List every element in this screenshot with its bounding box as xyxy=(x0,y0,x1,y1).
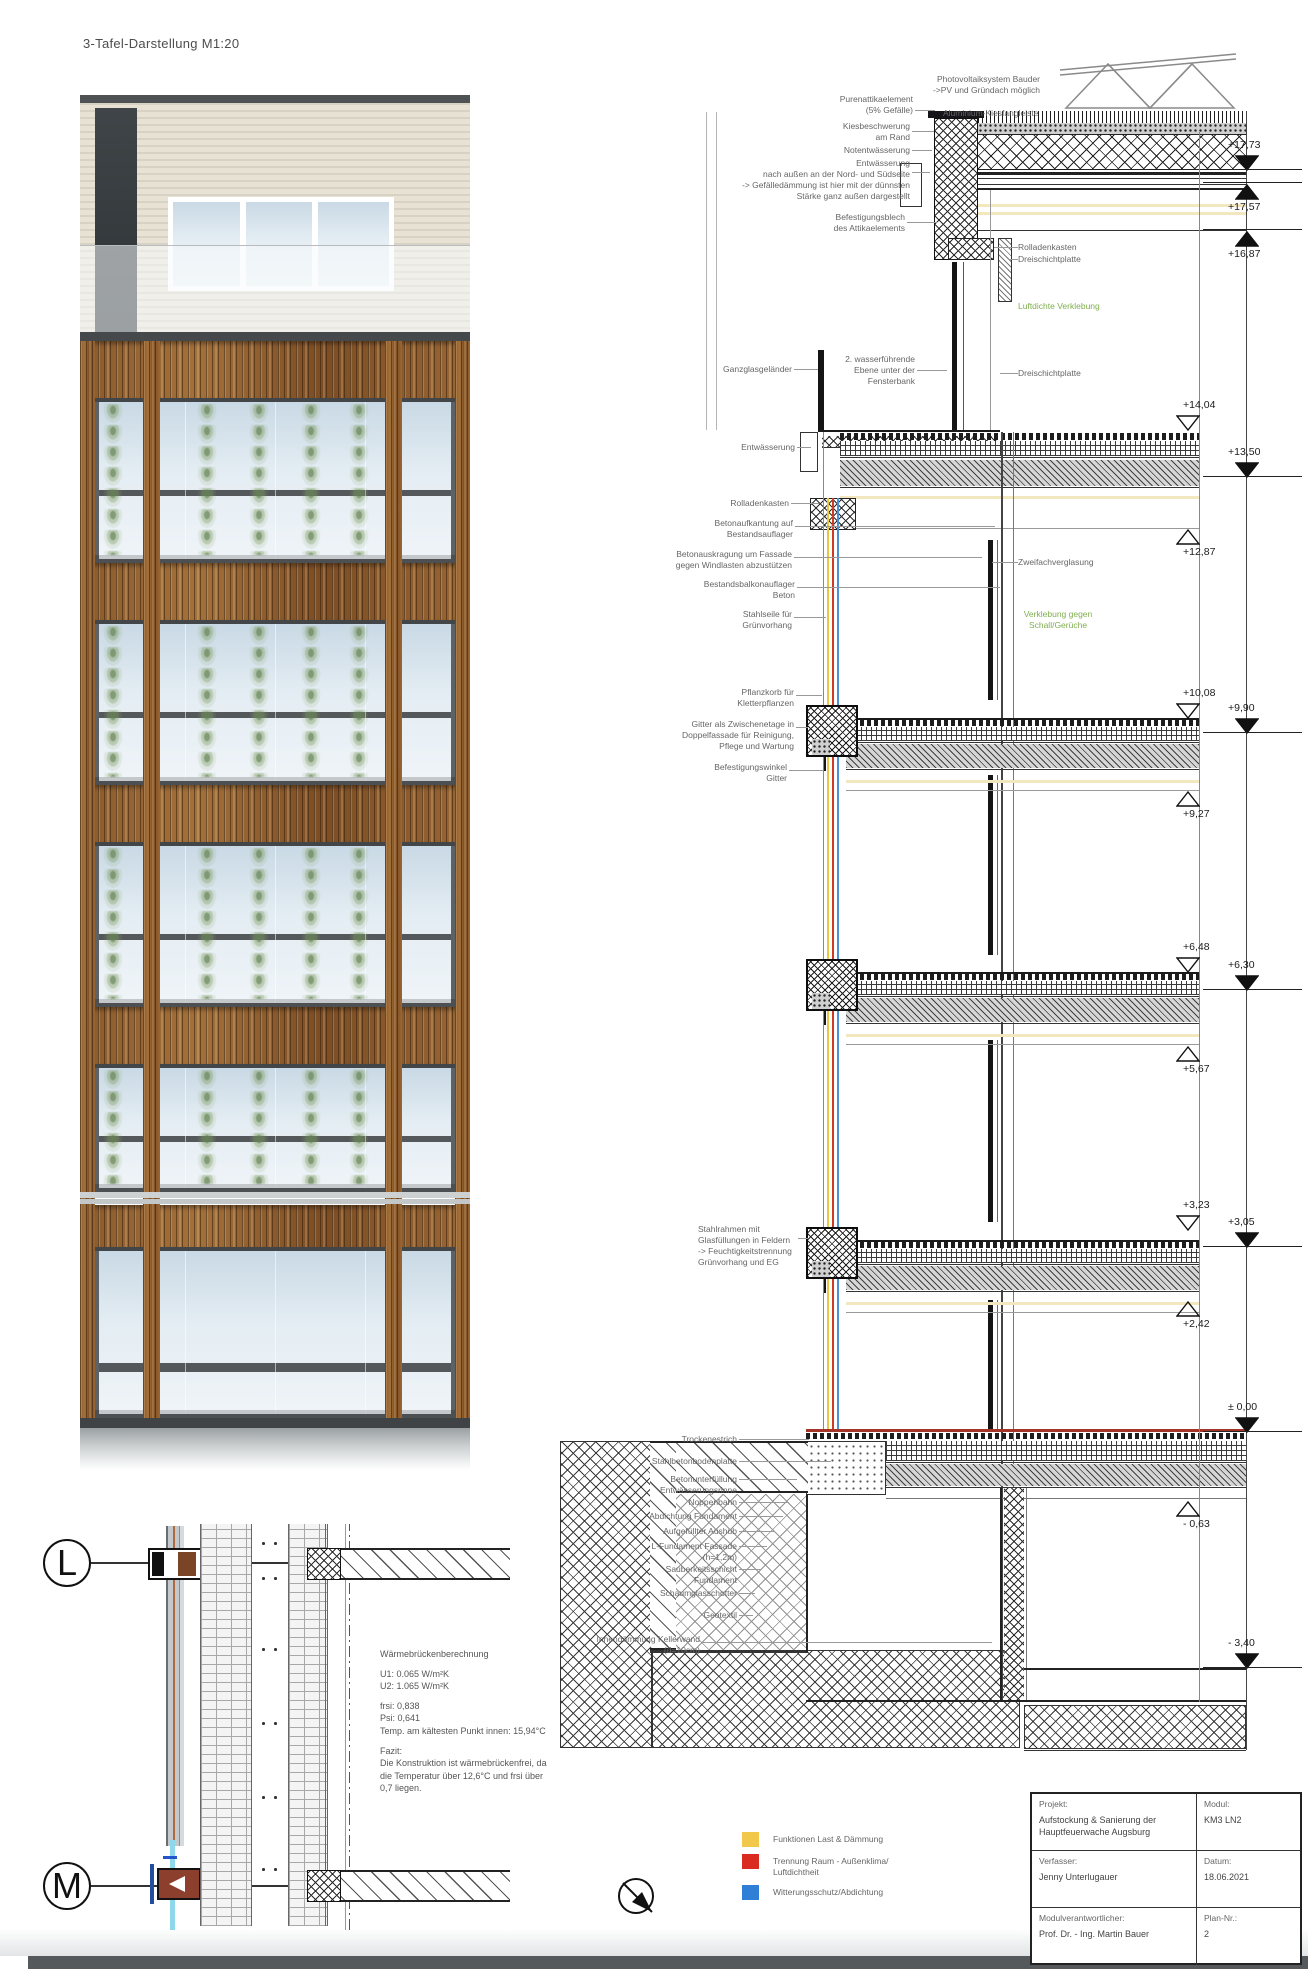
detail-shape xyxy=(325,1524,326,1926)
annotation-label: Pflanzkorb für Kletterpflanzen xyxy=(710,687,794,709)
annotation-label: Rolladenkasten xyxy=(723,498,789,509)
detail-shape xyxy=(262,1868,265,1871)
basement-wall-right xyxy=(1000,1488,1002,1702)
responsible-value: Prof. Dr. - Ing. Martin Bauer xyxy=(1039,1929,1189,1941)
basement-wall-left xyxy=(806,1494,808,1652)
section-shape xyxy=(846,1249,1200,1263)
bracket xyxy=(824,1011,826,1025)
soil-band xyxy=(652,1650,1020,1748)
section-shape xyxy=(846,780,1200,783)
level-line xyxy=(1203,476,1302,477)
vine-strip xyxy=(346,404,372,555)
annotation-label: Abdichtung Fundament xyxy=(610,1511,737,1522)
wood-pier xyxy=(143,341,160,1418)
level-triangle-icon xyxy=(1176,1301,1200,1317)
drawing-shape xyxy=(275,846,276,1003)
annotation-leader xyxy=(992,562,1018,563)
level-value: +14,04 xyxy=(1183,399,1255,411)
roof-edge xyxy=(80,95,470,103)
annotation-leader xyxy=(912,131,934,132)
screed-red-line xyxy=(806,1429,1246,1432)
responsible-label: Modulverantwortlicher: xyxy=(1039,1913,1189,1923)
gravel-fill xyxy=(808,1443,884,1493)
vine-strip xyxy=(104,626,122,777)
section-shape xyxy=(846,718,1200,720)
ceiling-line xyxy=(846,790,1200,791)
annotation-label: Geotextil xyxy=(610,1610,737,1621)
detail-shape xyxy=(274,1796,277,1799)
level-line xyxy=(1203,989,1302,990)
level-value: +9,27 xyxy=(1183,808,1255,820)
detail-shape xyxy=(274,1868,277,1871)
level-triangle-icon xyxy=(1235,184,1259,200)
floor-slab xyxy=(846,1266,1200,1290)
level-value: ± 0,00 xyxy=(1228,1401,1300,1413)
annotation-label: Noppenbahn xyxy=(610,1497,737,1508)
wood-pier xyxy=(455,341,470,1418)
level-triangle-icon xyxy=(1176,1501,1200,1517)
floor-slab xyxy=(846,744,1200,768)
basement-slab-top xyxy=(1024,1668,1246,1670)
section-shape xyxy=(1026,1488,1027,1702)
level-line xyxy=(1203,1667,1302,1668)
annotation-label: Zweifachverglasung xyxy=(1018,557,1118,568)
detail-shape xyxy=(262,1796,265,1799)
level-triangle-icon xyxy=(1235,231,1259,247)
masonry-wall-2 xyxy=(288,1524,328,1926)
page-title: 3-Tafel-Darstellung M1:20 xyxy=(83,36,239,51)
legend-item: Witterungsschutz/Abdichtung xyxy=(742,1885,888,1900)
level-line xyxy=(1203,169,1302,170)
double-glazing-window xyxy=(988,540,993,700)
calc-text-line: frsi: 0,838 xyxy=(380,1700,555,1713)
detail-shape xyxy=(274,1722,277,1725)
glass-balustrade xyxy=(80,245,470,333)
section-shape xyxy=(846,727,1200,741)
level-triangle-icon xyxy=(1176,791,1200,807)
detail-insulation-M xyxy=(307,1870,341,1902)
annotation-leader xyxy=(791,503,819,504)
section-shape xyxy=(846,1242,1200,1248)
detail-shape xyxy=(152,1552,164,1576)
calc-text-line xyxy=(380,1693,555,1700)
ground-sill xyxy=(80,1418,470,1428)
annotation-label: Stahlrahmen mit Glasfüllungen in Feldern… xyxy=(698,1224,796,1268)
detail-shape xyxy=(262,1542,265,1545)
section-shape xyxy=(846,742,1200,743)
detail-insulation-L xyxy=(307,1548,341,1580)
section-shape xyxy=(846,1240,1200,1242)
calc-text-line xyxy=(380,1661,555,1668)
calc-text-line: Die Konstruktion ist wärmebrückenfrei, d… xyxy=(380,1757,555,1770)
vine-strip xyxy=(298,626,324,777)
masonry-wall-1 xyxy=(200,1524,252,1926)
section-shape xyxy=(846,720,1200,726)
annotation-label: Photovoltaiksystem Bauder ->PV und Gründ… xyxy=(905,74,1040,96)
walkway-top xyxy=(818,430,1000,432)
section-shape xyxy=(978,204,1246,207)
annotation-label: L-Fundament Fassade (h=1,2m) xyxy=(610,1541,737,1563)
roof-substrate xyxy=(978,123,1246,134)
section-shape xyxy=(846,974,1200,980)
vine-strip xyxy=(104,848,122,999)
rolladenkasten xyxy=(948,238,994,260)
plan-number-value: 2 xyxy=(1204,1929,1293,1941)
wood-spandrel xyxy=(80,1007,470,1064)
section-shape xyxy=(846,1034,1200,1037)
level-line xyxy=(1203,732,1302,733)
annotation-leader xyxy=(796,695,822,696)
annotation-label: Innendämmung Kellerwand (d=10cm) xyxy=(575,1634,700,1656)
vine-strip xyxy=(104,1070,122,1184)
legend-item: Funktionen Last & Dämmung xyxy=(742,1832,888,1847)
detail-marker-L-label: L xyxy=(57,1542,77,1584)
section-shape xyxy=(846,981,1200,995)
section-shape xyxy=(886,1441,1246,1461)
planter-insulation-box xyxy=(806,705,858,757)
annotation-label: Purenattikaelement (5% Gefälle) xyxy=(805,94,913,116)
title-block-row: Verfasser: Jenny Unterlugauer Datum: 18.… xyxy=(1032,1851,1300,1908)
legend-item: Trennung Raum - Außenklima/ Luftdichthei… xyxy=(742,1854,888,1878)
detail-shape xyxy=(262,1577,265,1580)
annotation-label: Verklebung gegen Schall/Gerüche xyxy=(1012,609,1104,631)
annotation-label: Ganzglasgeländer xyxy=(712,364,792,375)
section-shape xyxy=(990,190,991,432)
detail-shape xyxy=(262,1722,265,1725)
annotation-leader xyxy=(796,727,808,728)
annotation-leader xyxy=(1008,259,1018,260)
walkway-insulation xyxy=(822,436,998,448)
existing-wall xyxy=(1001,432,1003,1702)
annotation-label: Rolladenkasten xyxy=(1018,242,1113,253)
basement-floor-line xyxy=(806,1700,1246,1702)
detail-shape xyxy=(274,1542,277,1545)
vine-strip xyxy=(194,404,220,555)
annotation-label: Luftdichte Verklebung xyxy=(1018,301,1128,312)
wood-pier xyxy=(80,341,95,1418)
double-glazing-window xyxy=(988,775,993,955)
pflanzkorb xyxy=(812,1261,830,1277)
annotation-leader xyxy=(739,1516,783,1517)
plinth xyxy=(80,1428,470,1470)
annotation-leader xyxy=(794,617,826,618)
ground-slab xyxy=(886,1464,1246,1486)
vine-strip xyxy=(194,848,220,999)
drainage-channel xyxy=(806,1441,886,1495)
soil-under-slab xyxy=(1024,1705,1246,1749)
detail-shape xyxy=(163,1856,177,1859)
double-glazing-window xyxy=(988,1300,993,1430)
section-shape xyxy=(886,1462,1246,1463)
thermal-bridge-calculation: WärmebrückenberechnungU1: 0.065 W/m²KU2:… xyxy=(380,1648,555,1795)
annotation-label: Befestigungswinkel Gitter xyxy=(703,762,787,784)
node-M-rail xyxy=(150,1864,154,1904)
floor-slab xyxy=(846,998,1200,1022)
detail-shape xyxy=(274,1577,277,1580)
annotation-leader xyxy=(912,150,932,151)
ceiling-line xyxy=(846,1044,1200,1045)
pflanzkorb xyxy=(812,739,830,755)
vine-strip xyxy=(194,1070,220,1184)
gitter-rail xyxy=(80,1192,470,1198)
calc-text-line: die Temperatur über 12,6°C und frsi über xyxy=(380,1770,555,1783)
level-line xyxy=(1203,182,1302,183)
section-shape xyxy=(846,1023,1200,1024)
level-triangle-icon xyxy=(1176,957,1200,973)
layer-line-yellow xyxy=(827,498,829,1432)
vine-strip xyxy=(246,848,272,999)
level-triangle-icon xyxy=(1176,1215,1200,1231)
wood-spandrel xyxy=(80,1205,470,1247)
wood-spandrel xyxy=(80,785,470,842)
legend-swatch xyxy=(742,1854,759,1869)
detail-marker-L: L xyxy=(43,1539,91,1587)
level-value: +17,73 xyxy=(1228,139,1300,151)
level-value: +3,05 xyxy=(1228,1216,1300,1228)
drawing-shape xyxy=(275,1068,276,1188)
section-shape xyxy=(846,1302,1200,1305)
date-value: 18.06.2021 xyxy=(1204,1872,1293,1884)
author-value: Jenny Unterlugauer xyxy=(1039,1872,1189,1884)
planter-insulation-box xyxy=(806,959,858,1011)
level-value: +3,23 xyxy=(1183,1199,1255,1211)
level-value: +9,90 xyxy=(1228,702,1300,714)
legend-swatch xyxy=(742,1885,759,1900)
annotation-leader xyxy=(739,1615,753,1616)
section-shape xyxy=(846,972,1200,974)
double-glazing-window xyxy=(988,1040,993,1222)
annotation-label: Betonunterfüllung Entwässerungsrinne xyxy=(610,1474,737,1496)
attika-element xyxy=(934,118,978,260)
gitter-rail xyxy=(80,1199,470,1204)
annotation-label: Stahlseile für Grünvorhang xyxy=(713,609,792,631)
annotation-leader xyxy=(739,1439,809,1440)
detail-shape xyxy=(262,1648,265,1651)
section-shape xyxy=(978,184,1246,185)
annotation-label: Trockenestrich xyxy=(610,1434,737,1445)
drawing-shape xyxy=(185,624,186,781)
drawing-shape xyxy=(185,1251,186,1414)
section-shape xyxy=(997,775,998,955)
annotation-label: Befestigungsblech des Attikaelements xyxy=(795,212,905,234)
annotation-label: Aufgefüllter Aushub xyxy=(610,1526,737,1537)
level-triangle-icon xyxy=(1176,415,1200,431)
legend-label: Trennung Raum - Außenklima/ Luftdichthei… xyxy=(773,1854,888,1878)
annotation-leader xyxy=(915,110,935,111)
section-shape xyxy=(978,230,1246,231)
drawing-shape xyxy=(275,402,276,559)
bracket xyxy=(824,757,826,771)
level-value: +2,42 xyxy=(1183,1318,1255,1330)
vine-strip xyxy=(298,848,324,999)
module-value: KM3 LN2 xyxy=(1204,1815,1293,1827)
ceiling-line xyxy=(840,528,1200,529)
level-triangle-icon xyxy=(1176,529,1200,545)
section-shape xyxy=(997,540,998,700)
section-shape xyxy=(1024,1750,1246,1751)
section-shape xyxy=(978,188,1246,190)
section-shape xyxy=(846,1264,1200,1265)
section-shape xyxy=(840,457,1200,458)
drawing-shape xyxy=(365,1251,366,1414)
section-shape xyxy=(978,212,1246,215)
calc-text-line: Psi: 0,641 xyxy=(380,1712,555,1725)
drawing-shape xyxy=(275,1251,276,1414)
section-shape xyxy=(840,496,1200,499)
annotation-label: Sauberkeitsschicht Fundament xyxy=(610,1564,737,1586)
planter-insulation-box xyxy=(806,1227,858,1279)
pv-system-symbol xyxy=(1058,50,1244,114)
title-block-row: Modulverantwortlicher: Prof. Dr. - Ing. … xyxy=(1032,1908,1300,1965)
vine-strip xyxy=(346,1070,372,1184)
level-value: +5,67 xyxy=(1183,1063,1255,1075)
vine-strip xyxy=(346,626,372,777)
annotation-label: Aluminium-Kiesfangleiste xyxy=(943,108,1058,119)
north-arrow-icon xyxy=(612,1872,662,1922)
outer-skin-line xyxy=(823,432,824,1432)
drawing-sheet: 3-Tafel-Darstellung M1:20 Photovoltaiksy… xyxy=(0,0,1308,1984)
calc-text-line xyxy=(380,1738,555,1745)
annotation-leader xyxy=(789,770,823,771)
attic-window xyxy=(952,262,957,432)
section-shape xyxy=(840,487,1200,488)
module-label: Modul: xyxy=(1204,1799,1293,1809)
vine-strip xyxy=(104,404,122,555)
level-value: - 0,63 xyxy=(1183,1518,1255,1530)
wood-spandrel xyxy=(80,341,470,398)
annotation-leader xyxy=(797,447,811,448)
roof-insulation xyxy=(978,134,1246,170)
annotation-leader xyxy=(798,1238,808,1239)
level-triangle-icon xyxy=(1176,1046,1200,1062)
level-value: +16,87 xyxy=(1228,248,1300,260)
detail-marker-M: M xyxy=(43,1862,91,1910)
annotation-leader xyxy=(739,1531,775,1532)
annotation-leader xyxy=(739,1546,767,1547)
annotation-leader xyxy=(739,1593,755,1594)
annotation-leader xyxy=(739,1502,789,1503)
section-shape xyxy=(886,1498,1246,1499)
project-label: Projekt: xyxy=(1039,1799,1189,1809)
date-label: Datum: xyxy=(1204,1856,1293,1866)
section-shape xyxy=(997,1300,998,1430)
annotation-leader xyxy=(912,172,930,173)
calc-text-line: Wärmebrückenberechnung xyxy=(380,1648,555,1661)
annotation-leader xyxy=(797,587,1000,588)
project-value: Aufstockung & Sanierung der Hauptfeuerwa… xyxy=(1039,1815,1189,1838)
annotation-leader xyxy=(739,1479,797,1480)
drawing-shape xyxy=(185,402,186,559)
drawing-shape xyxy=(275,624,276,781)
level-line xyxy=(1203,1246,1302,1247)
bracket xyxy=(824,1279,826,1293)
annotation-label: Bestandsbalkonauflager Beton xyxy=(700,579,795,601)
vine-strip xyxy=(298,1070,324,1184)
drawing-shape xyxy=(185,846,186,1003)
annotation-label: Dreischichtplatte xyxy=(1018,254,1113,265)
level-value: +10,08 xyxy=(1183,687,1255,699)
annotation-label: Schaumglasschotter xyxy=(610,1588,737,1599)
glass-railing xyxy=(818,350,824,432)
section-shape xyxy=(978,178,1246,179)
drainage-gutter xyxy=(800,432,818,472)
vine-strip xyxy=(298,404,324,555)
annotation-label: Dreischichtplatte xyxy=(1018,368,1113,379)
annotation-label: Entwässerung nach außen an der Nord- und… xyxy=(678,158,910,202)
annotation-leader xyxy=(907,222,937,223)
calc-text-line: U1: 0.065 W/m²K xyxy=(380,1668,555,1681)
annotation-leader xyxy=(794,369,818,370)
annotation-label: Gitter als Zwischenetage in Doppelfassad… xyxy=(666,719,794,752)
vine-strip xyxy=(246,1070,272,1184)
level-value: +6,30 xyxy=(1228,959,1300,971)
section-shape xyxy=(840,441,1200,456)
calc-text-line: U2: 1.065 W/m²K xyxy=(380,1680,555,1693)
section-shape xyxy=(806,1433,1246,1439)
annotation-label: Stahlbetonbodenplatte xyxy=(610,1456,737,1467)
author-label: Verfasser: xyxy=(1039,1856,1189,1866)
section-shape xyxy=(963,262,964,432)
annotation-label: Betonaufkantung auf Bestandsauflager xyxy=(710,518,793,540)
annotation-leader xyxy=(702,1642,992,1643)
level-value: - 3,40 xyxy=(1228,1637,1300,1649)
vine-strip xyxy=(246,626,272,777)
layer-line-blue xyxy=(837,498,839,1432)
level-value: +17,57 xyxy=(1228,201,1300,213)
annotation-label: Betonauskragung um Fassade gegen Windlas… xyxy=(668,549,792,571)
section-shape xyxy=(846,1291,1200,1292)
ceiling-line xyxy=(846,1312,1200,1313)
section-shape xyxy=(846,996,1200,997)
level-value: +13,50 xyxy=(1228,446,1300,458)
annotation-leader xyxy=(794,557,982,558)
vine-strip xyxy=(346,848,372,999)
roof-layer xyxy=(978,172,1246,175)
annotation-leader xyxy=(739,1461,831,1462)
level-line xyxy=(1203,1431,1302,1432)
annotation-label: Notentwässerung xyxy=(800,145,910,156)
annotation-leader xyxy=(1000,373,1018,374)
section-right-edge xyxy=(1246,111,1247,1750)
section-shape xyxy=(886,1487,1246,1488)
legend-swatch xyxy=(742,1832,759,1847)
annotation-label: Kiesbeschwerung am Rand xyxy=(800,121,910,143)
vine-strip xyxy=(194,626,220,777)
calc-text-line: Fazit: xyxy=(380,1745,555,1758)
level-triangle-icon xyxy=(1176,703,1200,719)
annotation-label: 2. wasserführende Ebene unter der Fenste… xyxy=(845,354,915,387)
level-line xyxy=(1203,229,1302,230)
detail-marker-M-label: M xyxy=(52,1865,82,1907)
title-block: Projekt: Aufstockung & Sanierung der Hau… xyxy=(1030,1792,1302,1965)
section-shape xyxy=(846,769,1200,770)
level-value: +12,87 xyxy=(1183,546,1255,558)
vine-strip xyxy=(246,404,272,555)
detail-shape xyxy=(178,1552,196,1576)
annotation-leader xyxy=(917,370,947,371)
wood-spandrel xyxy=(80,563,470,620)
material-legend: Funktionen Last & DämmungTrennung Raum -… xyxy=(742,1832,888,1907)
wood-pier xyxy=(385,341,402,1418)
annotation-label: Entwässerung xyxy=(733,442,795,453)
legend-label: Funktionen Last & Dämmung xyxy=(773,1832,883,1847)
annotation-leader xyxy=(739,1569,761,1570)
pflanzkorb xyxy=(812,993,830,1009)
annotation-leader xyxy=(994,247,1018,248)
section-shape xyxy=(840,433,1200,440)
calc-text-line: 0,7 liegen. xyxy=(380,1782,555,1795)
section-shape xyxy=(997,1040,998,1222)
